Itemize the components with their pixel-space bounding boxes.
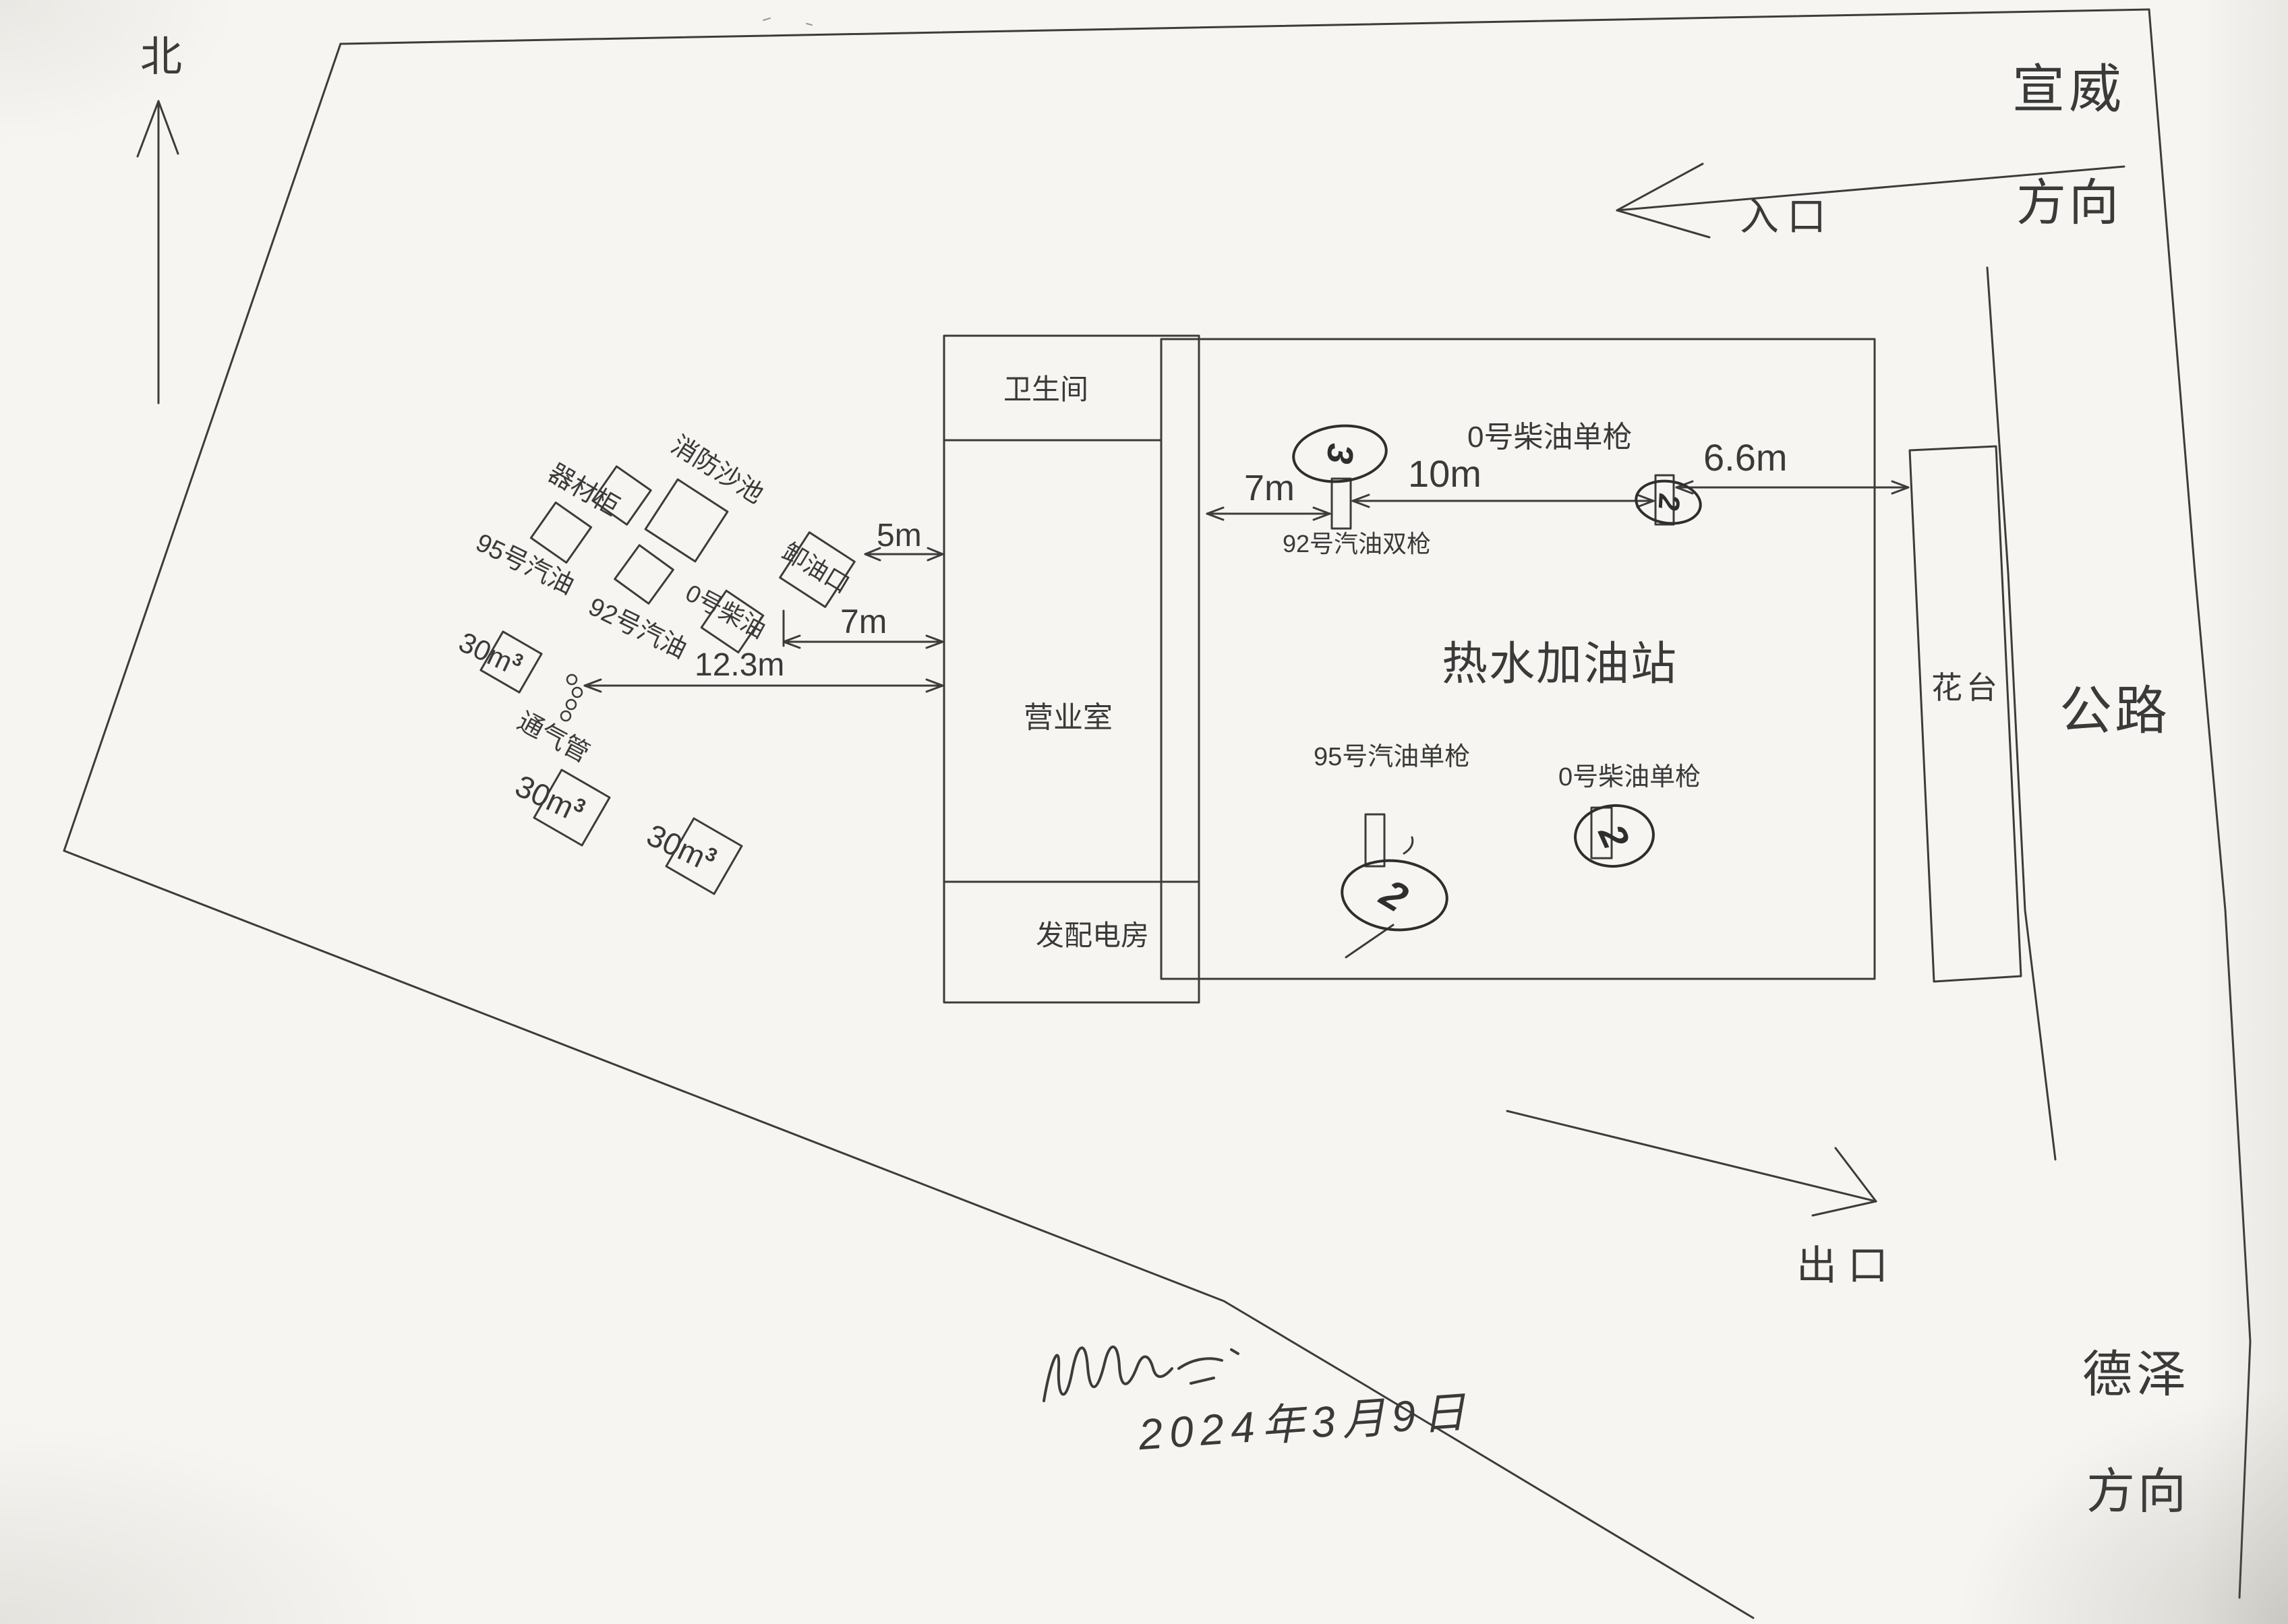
dispenser-92-double-label: 92号汽油双枪: [1283, 531, 1431, 557]
dispenser-95-single: [1366, 814, 1413, 866]
road-label: 公路: [2059, 684, 2170, 739]
dispenser-95-single-label: 95号汽油单枪: [1314, 744, 1470, 771]
room-power: 发配电房: [1036, 921, 1149, 951]
dim-7m-canopy-label: 7m: [1244, 469, 1295, 508]
direction-xuanwei-line1: 宣威: [2012, 62, 2125, 117]
site-plan-drawing: [0, 0, 2288, 1624]
room-restroom: 卫生间: [1003, 375, 1088, 404]
mark-95-single-digit: 2: [1373, 870, 1416, 921]
room-office: 营业室: [1024, 702, 1113, 733]
mark-diesel-bottom-digit: 2: [1590, 818, 1639, 855]
fire-sand-pool-box: [645, 479, 728, 562]
dim-7m-canopy-line: [1207, 508, 1330, 520]
scanned-site-plan: { "colors": { "ink": "#3a3a3a", "paper":…: [0, 0, 2288, 1624]
scan-specks: [763, 18, 812, 25]
station-title: 热水加油站: [1442, 640, 1678, 688]
entrance-label: 入口: [1740, 197, 1834, 238]
north-arrow: [138, 101, 178, 403]
exit-arrow: [1507, 1111, 1876, 1215]
dim-7m-left-label: 7m: [840, 604, 887, 640]
dim-10m-line: [1353, 495, 1653, 507]
dim-12-3m-label: 12.3m: [695, 649, 784, 682]
dim-5m-label: 5m: [877, 519, 922, 553]
dispenser-92-double: [1332, 479, 1351, 529]
north-label: 北: [140, 35, 182, 79]
mark-92-double-digit: 3: [1318, 442, 1361, 465]
direction-deze-line1: 德泽: [2082, 1348, 2190, 1401]
road-left-edge: [1987, 268, 2055, 1160]
direction-xuanwei-line2: 方向: [2016, 177, 2121, 229]
site-boundary: [64, 9, 2149, 1618]
direction-deze-line2: 方向: [2086, 1467, 2189, 1518]
dispenser-diesel-top-label: 0号柴油单枪: [1467, 422, 1632, 453]
tank-95-box: [531, 502, 591, 562]
exit-label: 出口: [1796, 1244, 1899, 1287]
tank-92-box: [615, 545, 674, 604]
flower-bed-label: 花台: [1931, 671, 2001, 704]
dim-6-6m-line: [1676, 481, 1908, 493]
mark-diesel-top-digit: 2: [1651, 493, 1685, 511]
signature-scribble: [1044, 1347, 1238, 1401]
dim-6-6m-label: 6.6m: [1703, 438, 1788, 478]
vent-pipe-circles: [561, 675, 582, 721]
dim-10m-label: 10m: [1408, 454, 1482, 494]
dispenser-diesel-bottom-label: 0号柴油单枪: [1558, 764, 1701, 791]
